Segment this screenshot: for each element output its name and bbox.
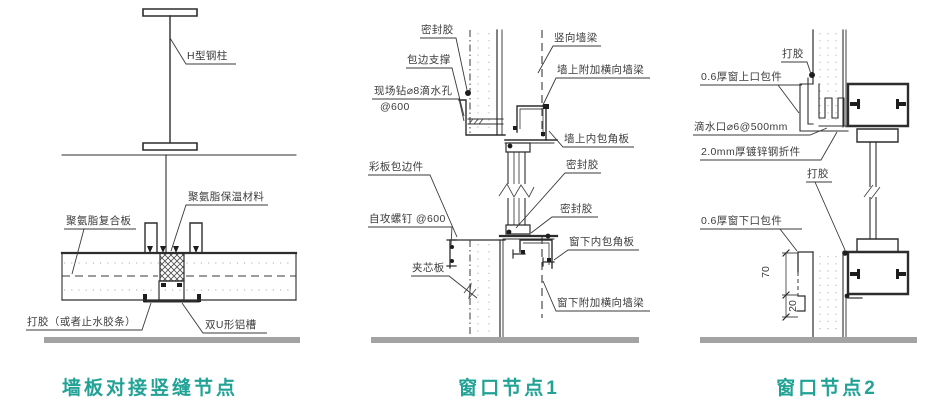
ground-line-middle — [371, 337, 639, 343]
label-wall-add-beam: 墙上附加横向墙梁 — [557, 64, 644, 77]
window-frame-head — [848, 84, 908, 142]
label-h-steel-column: H型钢柱 — [187, 50, 228, 63]
label-self-tapping-screw: 自攻螺钉 @600 — [369, 213, 446, 226]
window-section — [499, 143, 557, 239]
label-glue-mid: 打胶 — [807, 168, 829, 181]
label-glue-top: 打胶 — [782, 48, 804, 61]
label-vertical-wall-beam: 竖向墙梁 — [554, 32, 598, 45]
label-sandwich-panel: 夹芯板 — [412, 262, 445, 275]
lower-wall-panel — [464, 240, 503, 337]
sill-flashing-right — [797, 252, 813, 311]
dimension-70: 70 — [760, 266, 772, 278]
label-seal-glue: 打胶（或者止水胶条） — [27, 316, 136, 329]
window-frame-sill — [842, 239, 908, 298]
label-drip-hole-line2: @600 — [380, 101, 410, 114]
label-color-panel-trim: 彩板包边件 — [369, 161, 424, 174]
label-drip-hole-line1: 现场钻⌀8滴水孔 — [374, 85, 452, 98]
ground-line-right — [700, 337, 917, 343]
lower-wall-panel-right — [813, 252, 846, 337]
label-sealant-sill: 密封胶 — [560, 203, 593, 216]
construction-detail-sheet: H型钢柱 聚氨脂保温材料 聚氨脂复合板 打胶（或者止水胶条） 双U形铝槽 墙板对… — [0, 0, 950, 409]
label-wall-inner-corner: 墙上内包角板 — [564, 133, 629, 146]
label-pu-composite-panel: 聚氨脂复合板 — [66, 215, 131, 228]
label-pu-insulation: 聚氨脂保温材料 — [188, 191, 264, 204]
diagram-canvas — [0, 0, 950, 409]
ground-line-left — [44, 337, 300, 343]
label-sealant-mid: 密封胶 — [566, 159, 599, 172]
head-trim-detail — [800, 72, 848, 131]
label-sill-trim: 0.6厚窗下口包件 — [701, 215, 782, 228]
label-double-u-channel: 双U形铝槽 — [205, 319, 257, 332]
label-galv-fold: 2.0mm厚镀锌钢折件 — [701, 146, 801, 159]
upper-wall-panel-right — [813, 30, 846, 127]
label-drip-outlet: 滴水口⌀6@500mm — [694, 121, 788, 134]
panel1-title: 墙板对接竖缝节点 — [55, 373, 245, 400]
label-edge-support: 包边支撑 — [407, 54, 451, 67]
left-diagram — [26, 9, 300, 343]
leaders-middle — [368, 38, 650, 311]
panel3-title: 窗口节点2 — [752, 373, 902, 400]
label-sealant-top: 密封胶 — [421, 24, 454, 37]
label-head-trim: 0.6厚窗上口包件 — [701, 71, 782, 84]
glazing — [863, 142, 883, 239]
label-sill-add-beam: 窗下附加横向墙梁 — [557, 297, 644, 310]
label-sill-inner-corner: 窗下内包角板 — [569, 236, 634, 249]
panel2-title: 窗口节点1 — [434, 373, 584, 400]
dimension-20: 20 — [787, 300, 799, 312]
